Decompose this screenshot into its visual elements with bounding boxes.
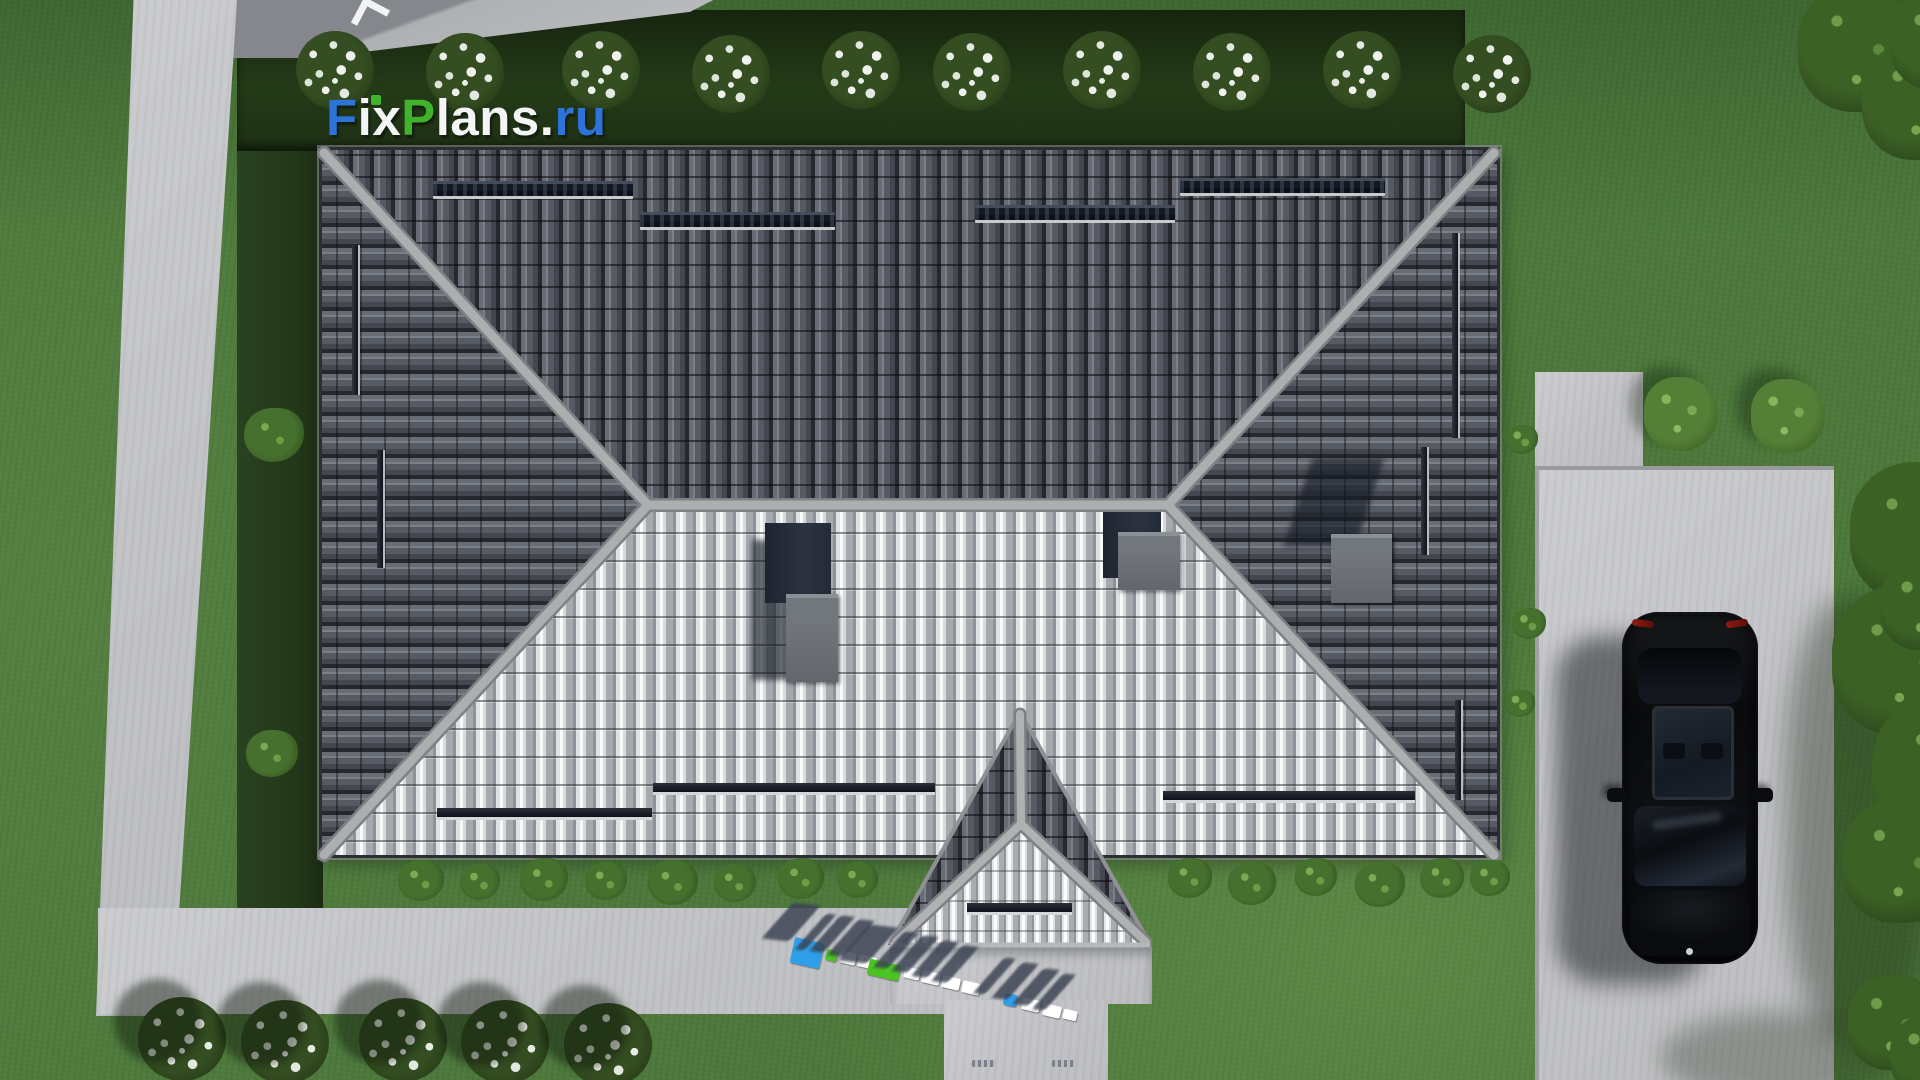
snow-guard-south [967,903,1072,915]
snow-guard-top [640,212,835,230]
snow-guard-side [377,450,385,568]
car-sunroof [1652,706,1734,800]
car-mirror-right [1753,788,1773,802]
logo-i-dot [371,95,381,105]
wall-shrub [1168,858,1212,898]
flower-bush-top [1323,31,1401,109]
flower-bush-bottom [461,1000,549,1080]
logo-part-p: P [401,89,436,146]
snow-guard-side [1452,233,1460,438]
snow-guard-top [433,181,633,199]
wall-shrub [1512,608,1546,639]
flower-bush-bottom [564,1003,652,1080]
flower-bush-top [1063,31,1141,109]
flower-bush-top [1193,33,1271,111]
car-hood [1630,890,1750,956]
snow-guard-south [653,783,935,795]
logo-part-dot: . [540,89,555,146]
car-mirror-left [1607,788,1627,802]
logo-part-lans: lans [436,89,540,146]
taillight-right [1726,619,1749,629]
snow-guard-side [1455,700,1463,800]
flower-bush-top [933,33,1011,111]
wall-shrub [1420,858,1464,898]
windshield-reflection [1652,811,1723,831]
car-seat [1701,743,1723,759]
car-seat [1663,743,1685,759]
snow-guard-top [1180,178,1385,196]
car-rear-window [1638,648,1742,704]
snow-guard-south [437,808,652,820]
watermark-logo: FixPlans.ru [326,88,606,147]
flower-bush-top [1453,35,1531,113]
logo-part-ru: ru [554,89,606,146]
wall-shrub [1506,425,1538,454]
flower-bush-bottom [138,997,226,1080]
car [1622,612,1758,964]
round-bush [1644,377,1718,451]
snow-guard-side [352,245,360,395]
logo-part-f: F [326,89,358,146]
round-bush [1751,379,1825,453]
snow-guard-south [1163,791,1415,803]
car-windshield [1634,806,1746,886]
snow-guard-side [1421,447,1429,555]
flower-bush-bottom [359,998,447,1080]
flower-bush-bottom [241,1000,329,1080]
aerial-render-scene: FixPlans.ru [0,0,1920,1080]
taillight-left [1632,619,1655,629]
car-front-emblem [1686,948,1693,955]
flower-bush-top [822,31,900,109]
snow-guard-top [975,205,1175,223]
flower-bush-top [692,35,770,113]
